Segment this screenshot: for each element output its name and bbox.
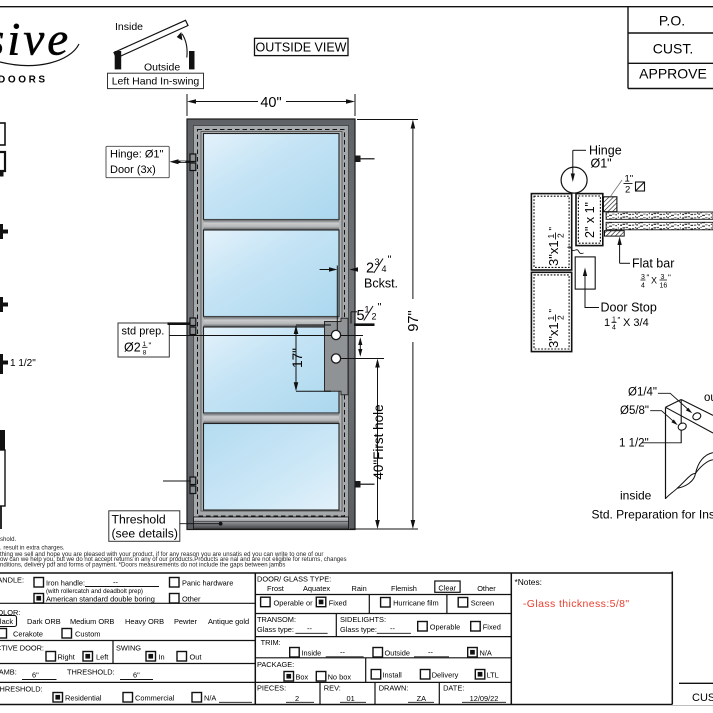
svg-text:": " [149,342,152,351]
svg-text:ACTIVE DOOR:: ACTIVE DOOR: [0,644,44,653]
svg-text:DATE:: DATE: [443,684,464,693]
svg-text:Iron handle:: Iron handle: [46,579,85,588]
svg-text:2: 2 [625,185,630,196]
svg-text:40"First hole: 40"First hole [371,404,386,479]
svg-text:40": 40" [260,95,281,111]
svg-text:N/A: N/A [204,694,216,703]
svg-text:--: -- [113,578,118,587]
svg-text:1: 1 [604,317,610,329]
svg-text:DOOR/ GLASS TYPE:: DOOR/ GLASS TYPE: [257,575,331,584]
svg-text:97": 97" [406,310,422,331]
svg-text:Ø5/8": Ø5/8" [620,405,649,417]
svg-text:": " [378,302,382,314]
svg-text:THRESHOLD:: THRESHOLD: [0,685,43,694]
svg-text:PACKAGE:: PACKAGE: [257,660,294,669]
svg-text:Left: Left [96,653,108,662]
svg-text:Bckst.: Bckst. [364,277,398,291]
svg-text:1": 1" [625,174,634,185]
svg-text:Dark ORB: Dark ORB [27,617,61,626]
svg-text:Operable: Operable [430,623,460,632]
svg-text:1: 1 [546,316,556,321]
svg-text:Right: Right [58,653,75,662]
svg-text:nditions, delivery pdf and for: nditions, delivery pdf and forms of paym… [0,562,285,568]
svg-text:CUST.: CUST. [653,41,693,57]
svg-text:Other: Other [182,595,201,604]
svg-text:1: 1 [546,234,556,239]
svg-text:Commercial: Commercial [135,694,175,703]
svg-text:Screen: Screen [471,599,494,608]
svg-text:Residential: Residential [65,694,102,703]
svg-text:Medium ORB: Medium ORB [70,617,114,626]
svg-text:2" x 1": 2" x 1" [583,202,597,238]
svg-text:17": 17" [290,348,305,368]
svg-text:In: In [159,653,165,662]
svg-text:Door (3x): Door (3x) [110,164,156,176]
svg-text:P.O.: P.O. [659,13,685,29]
svg-text:HANDLE:: HANDLE: [0,576,24,585]
svg-text:Aquatex: Aquatex [303,584,330,593]
svg-text:--: -- [340,648,345,657]
svg-text:": " [548,227,559,231]
svg-text:--: -- [390,624,395,633]
svg-text:*Notes:: *Notes: [515,577,542,587]
svg-text:Ø1": Ø1" [591,157,612,171]
svg-text:3"x1: 3"x1 [546,322,561,348]
svg-text:X 3/4: X 3/4 [623,317,649,329]
svg-text:2: 2 [556,315,566,320]
svg-text:SWING: SWING [116,644,141,653]
svg-text:2: 2 [366,261,374,277]
svg-text:Hurricane film: Hurricane film [393,599,439,608]
svg-text:Black: Black [0,617,13,626]
svg-text:6": 6" [32,671,39,680]
svg-text:Flemish: Flemish [391,584,417,593]
svg-text:Outside: Outside [385,649,410,658]
svg-text:1 1/2": 1 1/2" [619,438,649,450]
svg-text:Outside: Outside [144,62,180,74]
svg-text:": " [668,274,671,283]
svg-text:inside: inside [620,489,652,503]
svg-text:SIDELIGHTS:: SIDELIGHTS: [340,615,386,624]
svg-text:2: 2 [556,233,566,238]
svg-text:Std. Preparation for Inswing: Std. Preparation for Inswing [592,508,713,522]
svg-text:std prep.: std prep. [122,326,165,338]
svg-text:REV:: REV: [324,684,341,693]
svg-text:Hinge: Ø1": Hinge: Ø1" [110,149,164,161]
svg-text:Glass type:: Glass type: [340,625,377,634]
svg-text:2: 2 [372,312,377,322]
svg-text:APPROVE: APPROVE [639,66,707,82]
svg-text:Delivery: Delivery [432,671,459,680]
svg-text:12/09/22: 12/09/22 [470,694,499,703]
svg-text:X: X [651,276,657,286]
svg-text:sive: sive [0,14,71,66]
svg-text:THRESHOLD:: THRESHOLD: [67,668,115,677]
svg-text:--: -- [307,624,312,633]
svg-text:Clear: Clear [438,583,456,592]
svg-text:Left Hand In-swing: Left Hand In-swing [112,76,200,88]
svg-text:Install: Install [383,671,403,680]
svg-text:1 1/2": 1 1/2" [10,358,36,369]
svg-text:Rain: Rain [352,584,367,593]
svg-text:Box: Box [296,673,309,682]
svg-text:(see details): (see details) [112,527,178,541]
svg-text:shold.: shold. [0,537,16,543]
svg-text:01: 01 [347,694,355,703]
svg-text:": " [618,316,621,325]
svg-text:Antique gold: Antique gold [208,617,249,626]
svg-text:": " [548,309,559,313]
svg-text:PIECES:: PIECES: [257,684,286,693]
svg-text:6": 6" [133,671,140,680]
svg-text:16: 16 [660,283,668,290]
svg-text:Fixed: Fixed [483,623,501,632]
svg-text:Glass type:: Glass type: [257,625,294,634]
svg-text:outside: outside [704,392,713,404]
svg-text:Heavy ORB: Heavy ORB [125,617,164,626]
svg-text:Inside: Inside [115,21,143,33]
svg-text:No box: No box [328,673,352,682]
svg-text:Pewter: Pewter [174,617,198,626]
svg-text:Hinge: Hinge [589,144,622,158]
svg-text:Fixed: Fixed [329,599,347,608]
svg-text:OUTSIDE VIEW: OUTSIDE VIEW [256,41,347,55]
svg-text:DOORS: DOORS [0,75,48,86]
svg-text:Inside: Inside [302,649,322,658]
svg-text:Threshold: Threshold [112,513,166,527]
svg-text:8: 8 [143,350,147,357]
svg-text:Cerakote: Cerakote [13,630,43,639]
svg-text:Door Stop: Door Stop [601,301,657,315]
svg-text:Panic hardware: Panic hardware [182,579,233,588]
svg-text:Ø2: Ø2 [124,341,141,355]
svg-text:2: 2 [295,694,299,703]
svg-text:Frost: Frost [267,584,284,593]
svg-text:": " [388,254,392,266]
svg-text:5: 5 [357,308,365,324]
svg-text:Flat bar: Flat bar [632,257,674,271]
svg-text:CUSTOMER: CUSTOMER [692,692,713,704]
svg-text:ZA: ZA [417,694,427,703]
svg-text:. result in extra charges.: . result in extra charges. [0,546,65,552]
svg-text:JAMB:: JAMB: [0,668,17,677]
svg-text:TRANSOM:: TRANSOM: [257,615,296,624]
svg-text:4: 4 [641,283,645,290]
svg-text:Other: Other [477,584,496,593]
svg-text:": " [647,274,650,283]
svg-text:3"x1: 3"x1 [546,240,561,266]
svg-text:Custom: Custom [75,630,100,639]
svg-text:Ø1/4": Ø1/4" [628,387,657,399]
svg-text:TRIM:: TRIM: [261,638,281,647]
svg-text:Operable or: Operable or [274,599,314,608]
svg-text:-Glass thickness:5/8": -Glass thickness:5/8" [523,598,630,610]
svg-text:--: -- [428,648,433,657]
svg-text:4: 4 [382,264,387,274]
svg-text:American standard double borin: American standard double boring [46,595,155,604]
svg-text:DRAWN:: DRAWN: [379,684,409,693]
svg-text:LTL: LTL [487,671,499,680]
svg-text:N/A: N/A [480,649,492,658]
svg-text:4: 4 [612,325,616,332]
svg-text:Out: Out [190,653,202,662]
